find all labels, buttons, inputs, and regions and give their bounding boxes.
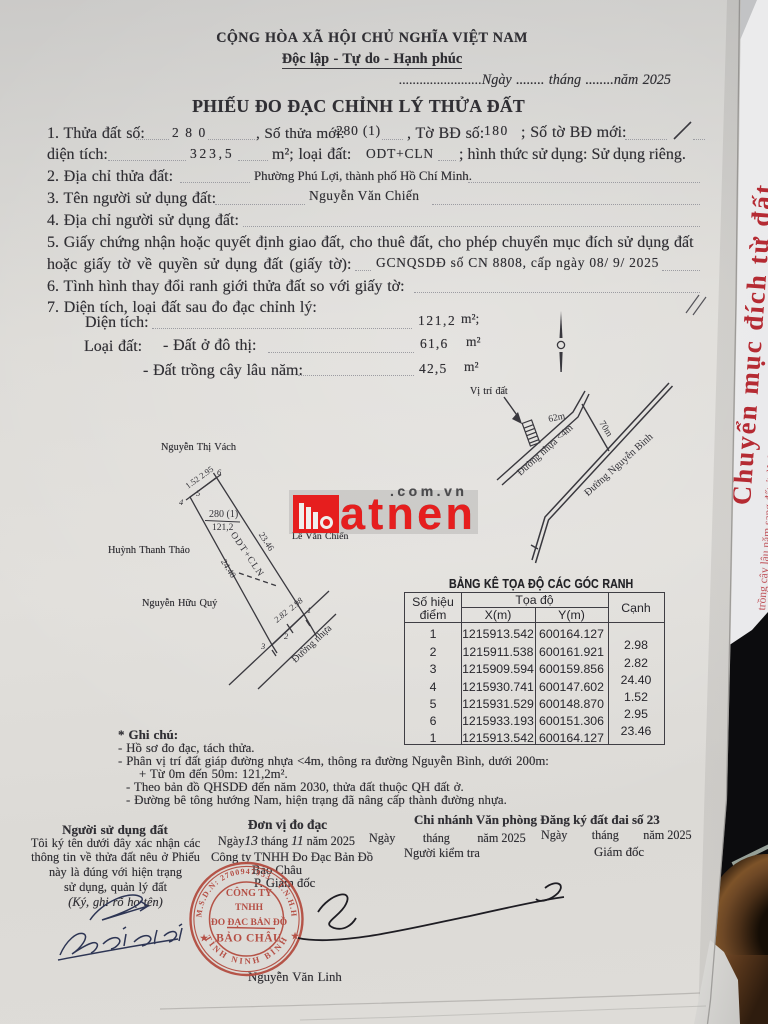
svg-text:24.40: 24.40 [219,557,238,580]
svg-text:★: ★ [200,933,209,943]
svg-text:70m: 70m [596,419,614,439]
svg-text:2.95: 2.95 [197,464,215,481]
svg-text:280 (1): 280 (1) [209,509,238,520]
svg-text:6: 6 [217,467,222,477]
svg-text:2.98: 2.98 [287,595,305,613]
svg-text:4: 4 [179,497,184,507]
svg-text:BẢO CHÂU: BẢO CHÂU [216,931,282,945]
svg-text:3: 3 [260,641,265,651]
svg-text:TNHH: TNHH [235,903,264,913]
svg-text:62m: 62m [548,412,567,425]
svg-text:CÔNG TY: CÔNG TY [226,886,273,899]
svg-text:5: 5 [196,488,200,498]
svg-text:2.82: 2.82 [272,607,290,625]
svg-text:23.46: 23.46 [257,530,277,553]
svg-text:ĐO ĐẠC BẢN ĐỒ: ĐO ĐẠC BẢN ĐỒ [211,915,287,928]
svg-text:121,2: 121,2 [212,523,234,533]
svg-text:★: ★ [291,931,300,941]
